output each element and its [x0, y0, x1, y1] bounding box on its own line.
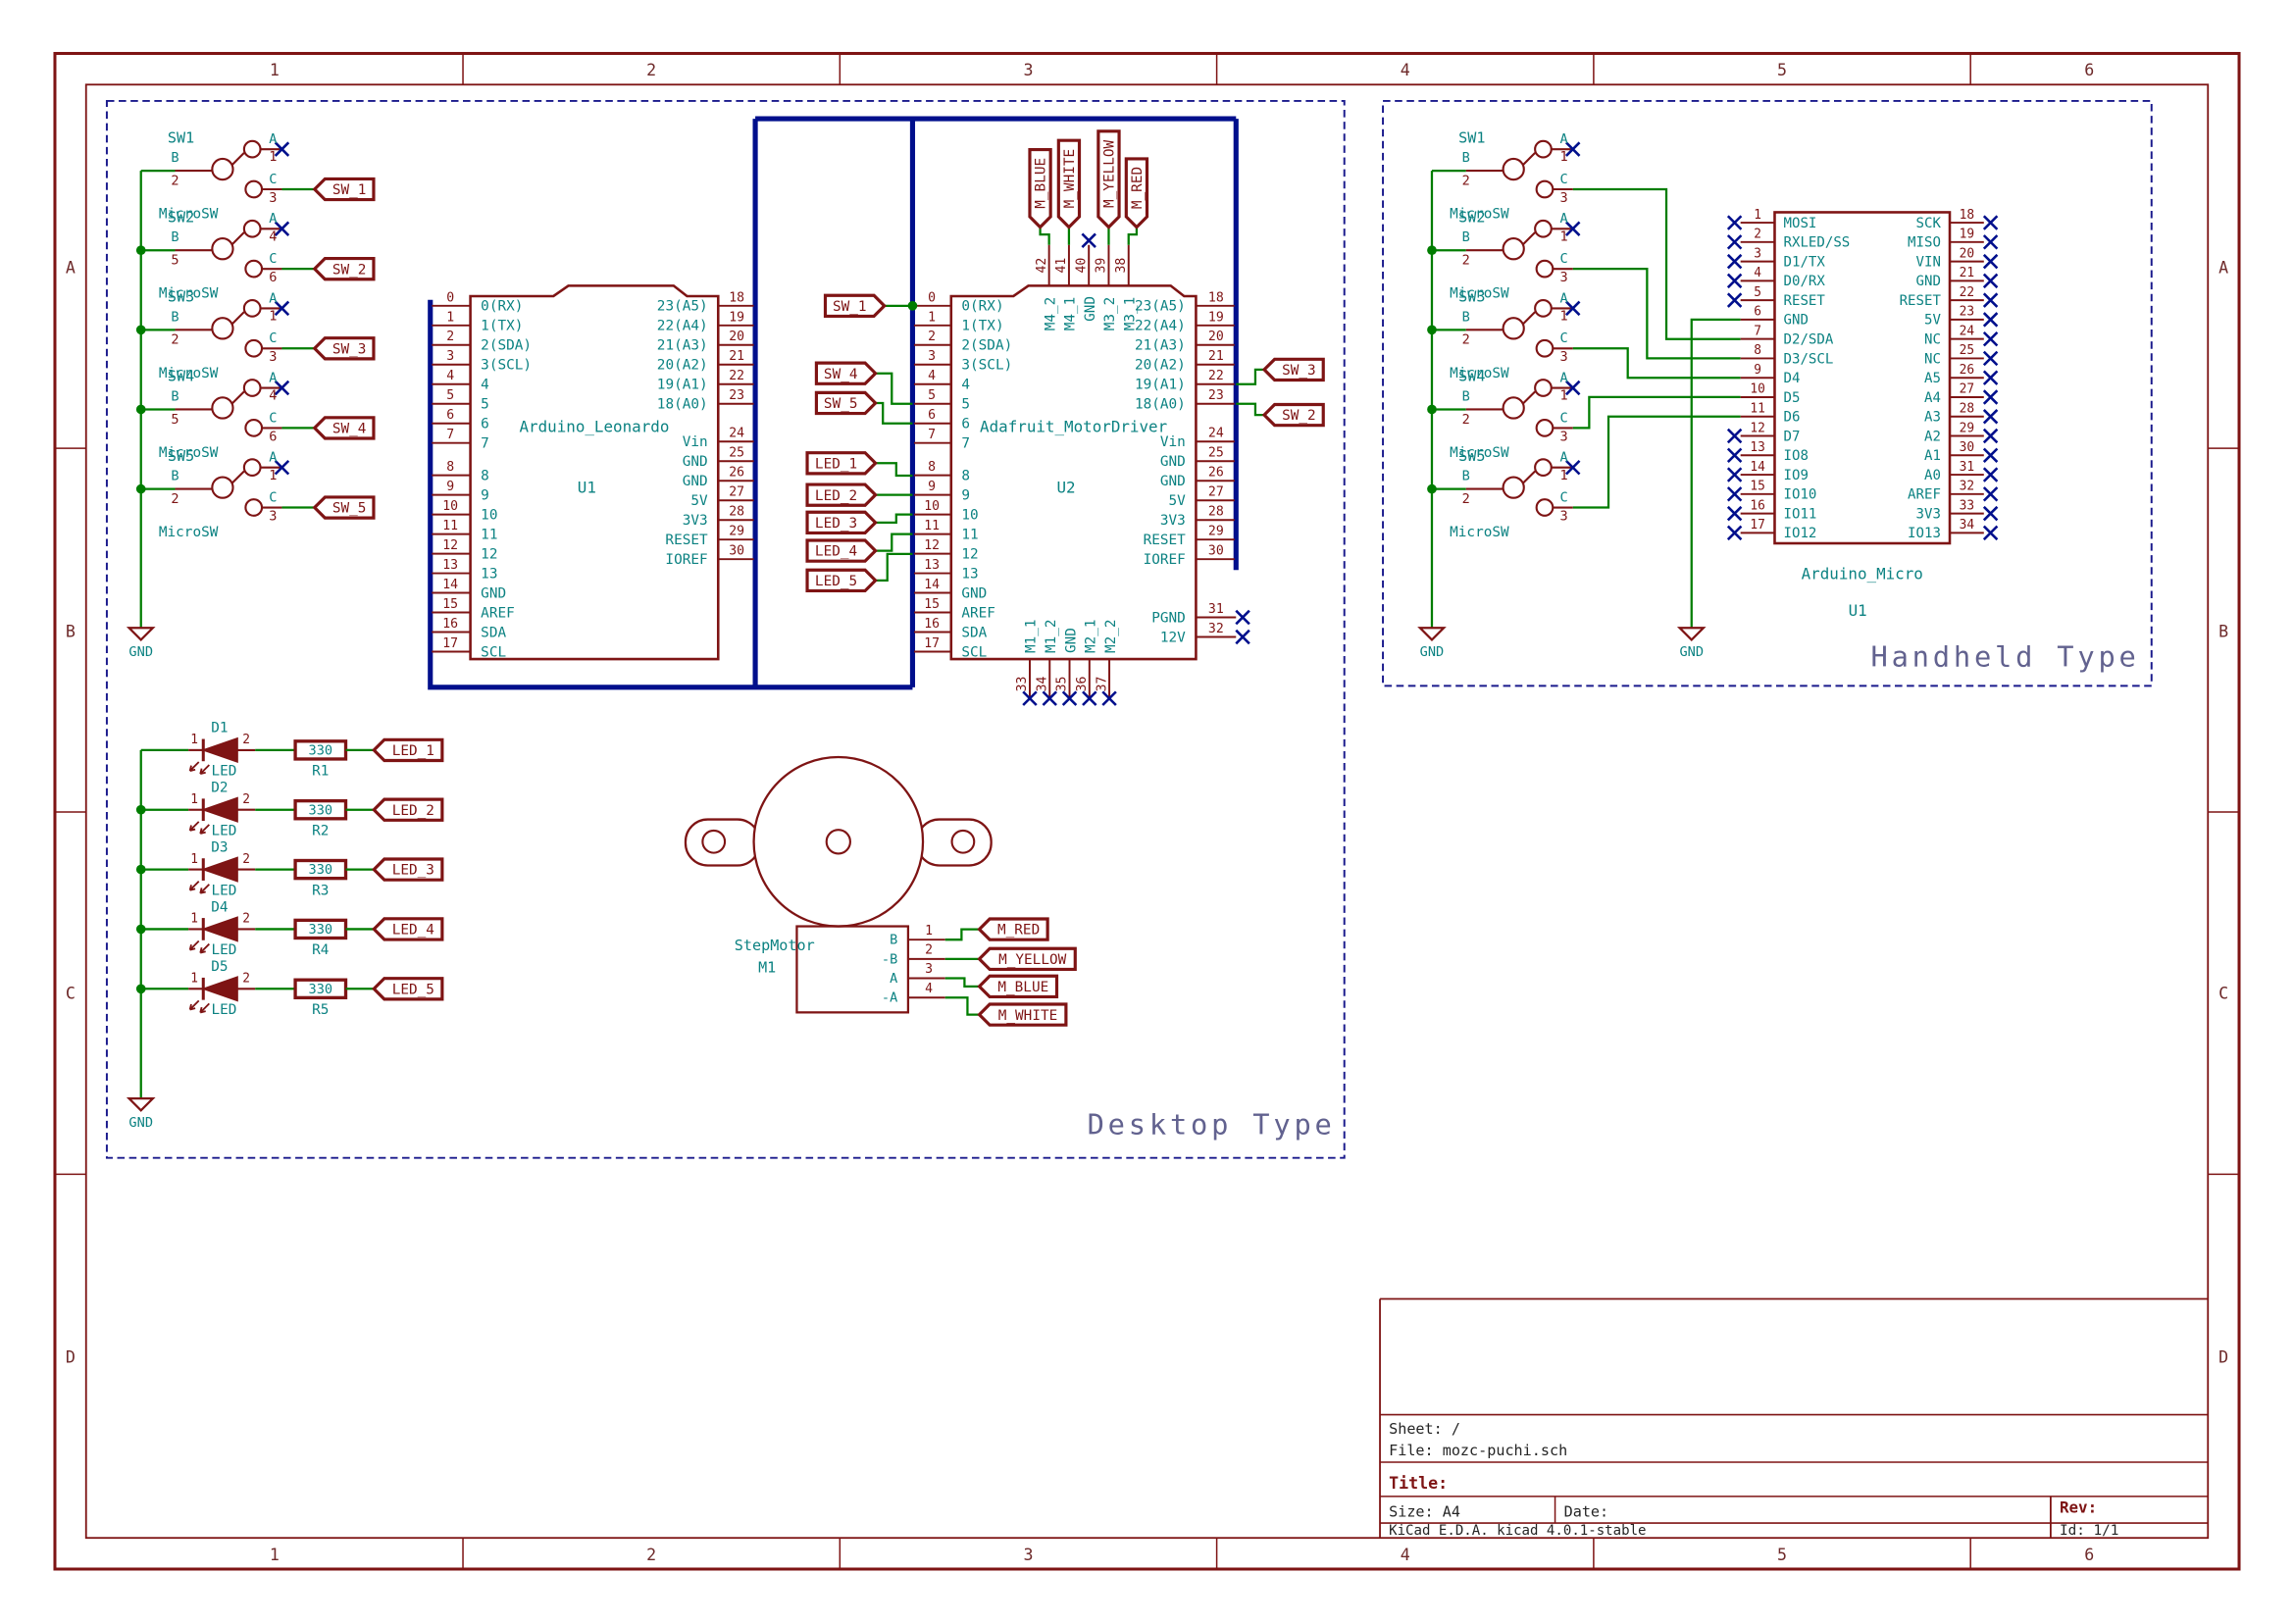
component-sw2-handheld[interactable]: SW2B2A1C3MicroSW: [1432, 208, 1580, 301]
pin-number: 32: [1208, 622, 1224, 636]
pin-number: 0: [928, 290, 936, 305]
pin-number: 4: [928, 369, 936, 383]
pin-number: 1: [269, 309, 277, 325]
pin-name: Vin: [1160, 434, 1186, 450]
net-label-text: SW_4: [824, 367, 858, 382]
switch-contact: [1523, 153, 1535, 165]
net-label-sw_3[interactable]: SW_3: [315, 338, 374, 359]
schematic-page: 112233445566AABBCCDDSheet: /File: mozc-p…: [0, 0, 2294, 1624]
pin-number: 2: [171, 332, 178, 348]
net-label-text: LED_4: [815, 544, 857, 560]
component-r4[interactable]: 330R4: [295, 920, 374, 958]
pin-number: 20: [1208, 330, 1224, 344]
pin-number: 12: [442, 538, 458, 553]
titleblock-generator: KiCad E.D.A. kicad 4.0.1-stable: [1389, 1523, 1646, 1539]
wire: [876, 403, 913, 424]
frame-column-label: 2: [646, 61, 656, 79]
pin-name: MOSI: [1784, 216, 1817, 231]
pin-name: C: [1560, 251, 1568, 267]
frame-column-label: 5: [1777, 1546, 1787, 1564]
net-label-m_red[interactable]: M_RED: [980, 919, 1048, 939]
net-label-m_red[interactable]: M_RED: [1126, 159, 1147, 228]
net-label-sw_4[interactable]: SW_4: [816, 363, 875, 383]
switch-throw-a: [244, 459, 261, 476]
net-label-sw_5[interactable]: SW_5: [816, 392, 875, 413]
net-label-led_2[interactable]: LED_2: [807, 484, 876, 505]
component-ref: SW1: [1458, 128, 1485, 146]
pin-number: 25: [729, 446, 744, 461]
pin-name: IO11: [1784, 506, 1817, 522]
switch-throw-c: [1537, 499, 1554, 516]
net-label-text: SW_2: [332, 262, 367, 278]
net-label-text: M_BLUE: [1034, 158, 1049, 209]
pin-number: 6: [446, 408, 454, 423]
pin-number: 10: [442, 499, 458, 514]
pin-number: 1: [1560, 309, 1568, 325]
pin-name: VIN: [1916, 254, 1941, 270]
no-connect-x: [1728, 255, 1742, 269]
resistor-value: 330: [309, 802, 333, 818]
pin-number: 2: [242, 792, 250, 807]
component-r1[interactable]: 330R1: [295, 741, 374, 780]
pin-number: 21: [1208, 349, 1224, 364]
net-label-m_blue[interactable]: M_BLUE: [1030, 150, 1050, 228]
net-label-sw_1[interactable]: SW_1: [315, 178, 374, 199]
component-d2[interactable]: 12D2LED: [141, 781, 295, 839]
component-value: LED: [211, 883, 236, 898]
pin-name: 4: [481, 378, 489, 393]
pin-name: 21(A3): [1135, 338, 1186, 354]
pin-name: 5: [481, 397, 489, 413]
wire: [1041, 228, 1049, 245]
pin-number: 25: [1960, 343, 1974, 358]
led-emission-arrow: [200, 825, 209, 834]
motor-ear: [917, 820, 992, 866]
component-ref: D5: [211, 959, 228, 975]
pin-number: 13: [442, 558, 458, 573]
pin-number: 1: [190, 912, 198, 927]
no-connect-x: [1984, 527, 1998, 540]
switch-throw-c: [245, 420, 262, 436]
component-ref: D3: [211, 839, 228, 855]
component-ref: R3: [312, 883, 329, 898]
pin-name: -A: [882, 990, 897, 1006]
switch-common: [212, 397, 232, 418]
component-ref: R1: [312, 764, 329, 780]
pin-number: 38: [1114, 258, 1129, 274]
sheet-handheld[interactable]: [1383, 101, 2152, 685]
net-label-sw_2[interactable]: SW_2: [315, 259, 374, 279]
pin-number: 41: [1054, 258, 1069, 274]
resistor-value: 330: [309, 982, 333, 997]
wire: [945, 930, 980, 940]
pin-name: M4_1: [1063, 297, 1079, 331]
no-connect-x: [1728, 216, 1742, 229]
net-label-text: M_WHITE: [998, 1008, 1058, 1024]
net-label-m_yellow[interactable]: M_YELLOW: [1098, 131, 1119, 228]
pin-name: D1/TX: [1784, 254, 1826, 270]
wire: [1573, 348, 1741, 378]
pin-number: 2: [242, 971, 250, 986]
net-label-text: SW_5: [824, 396, 858, 412]
pin-number: 14: [442, 578, 458, 592]
net-label-led_4[interactable]: LED_4: [807, 540, 876, 561]
pin-number: 1: [1560, 149, 1568, 165]
pin-name: D7: [1784, 429, 1801, 444]
pin-name: MISO: [1908, 235, 1941, 251]
pin-name: M3_2: [1102, 297, 1118, 331]
pin-name: IOREF: [665, 552, 707, 568]
pin-name: D4: [1784, 371, 1801, 386]
no-connect-x: [1728, 487, 1742, 501]
pin-name: IO13: [1908, 526, 1941, 541]
pin-number: 40: [1074, 258, 1089, 274]
component-sw5-desktop[interactable]: SW5B2A1C3MicroSWSW_5: [141, 447, 374, 540]
switch-throw-a: [1535, 459, 1552, 476]
pin-number: 29: [1208, 525, 1224, 539]
led-emission-arrow: [200, 944, 209, 953]
component-d1[interactable]: 12D1LED: [141, 721, 295, 780]
motor-ear: [686, 820, 760, 866]
wire: [876, 463, 913, 476]
pin-number: 5: [171, 253, 178, 269]
switch-common: [1504, 397, 1524, 418]
desktop-switch-bank: GND: [128, 171, 153, 660]
wire: [945, 979, 980, 987]
net-label-led_3[interactable]: LED_3: [807, 512, 876, 533]
sheet-name-desktop: Desktop Type: [1088, 1107, 1336, 1141]
pin-number: 19: [1960, 228, 1974, 242]
pin-name: 2(SDA): [481, 338, 532, 354]
pin-number: 3: [1560, 270, 1568, 285]
component-ref: U2: [1056, 479, 1075, 497]
pin-number: 27: [729, 485, 744, 500]
pin-number: 6: [1754, 305, 1761, 320]
pin-name: 0(RX): [961, 299, 1003, 315]
component-ref: SW3: [168, 288, 194, 306]
component-ref: SW3: [1458, 288, 1485, 306]
pin-number: 19: [1208, 310, 1224, 325]
net-label-m_yellow[interactable]: M_YELLOW: [980, 948, 1076, 969]
frame-column-label: 3: [1023, 61, 1033, 79]
frame-column-label: 6: [2084, 61, 2094, 79]
net-label-led_5[interactable]: LED_5: [374, 979, 442, 999]
net-label-sw_1[interactable]: SW_1: [825, 295, 884, 316]
component-ref: R4: [312, 942, 329, 958]
pin-number: 7: [1754, 324, 1761, 338]
pin-number: 23: [1960, 305, 1974, 320]
no-connect-x: [1984, 216, 1998, 229]
pin-number: 2: [1462, 173, 1470, 188]
net-label-text: LED_5: [392, 982, 434, 997]
pin-number: 18: [729, 290, 744, 305]
component-ref: D2: [211, 781, 228, 796]
switch-contact: [1523, 391, 1535, 403]
pin-name: IO10: [1784, 487, 1817, 503]
pin-number: 5: [446, 388, 454, 403]
pin-number: 3: [1560, 190, 1568, 206]
net-label-sw_3[interactable]: SW_3: [1264, 359, 1323, 380]
pin-name: 0(RX): [481, 299, 523, 315]
pin-name: 7: [481, 436, 489, 452]
pin-name: SDA: [481, 625, 506, 640]
pin-number: 29: [1960, 421, 1974, 435]
component-sw1-handheld[interactable]: SW1B2A1C3MicroSW: [1432, 128, 1580, 222]
pin-number: 3: [1754, 246, 1761, 261]
pin-name: GND: [1160, 474, 1186, 489]
net-label-text: LED_2: [815, 488, 857, 504]
pin-name: M3_1: [1122, 297, 1138, 331]
net-label-text: SW_3: [332, 341, 367, 357]
net-label-m_white[interactable]: M_WHITE: [980, 1004, 1066, 1025]
frame-column-label: 5: [1777, 61, 1787, 79]
pin-name: 5: [961, 397, 970, 413]
pin-name: AREF: [1908, 487, 1941, 503]
no-connect-x: [1984, 507, 1998, 521]
no-connect-x: [1984, 390, 1998, 404]
component-value: LED: [211, 942, 236, 958]
pin-name: IOREF: [1144, 552, 1186, 568]
frame-column-label: 2: [646, 1546, 656, 1564]
component-r2[interactable]: 330R2: [295, 801, 374, 839]
no-connect-x: [1728, 468, 1742, 482]
pin-name: 11: [961, 527, 978, 542]
resistor-value: 330: [309, 862, 333, 878]
pin-number: 4: [269, 228, 277, 244]
pin-number: 5: [171, 412, 178, 428]
pin-name: A: [269, 450, 277, 466]
net-label-led_5[interactable]: LED_5: [807, 570, 876, 590]
net-label-text: M_WHITE: [1062, 149, 1078, 209]
pin-number: 6: [269, 270, 277, 285]
pin-name: A: [269, 131, 277, 147]
pin-name: A: [269, 370, 277, 385]
wire: [876, 374, 913, 404]
pin-name: 3V3: [1916, 506, 1941, 522]
pin-number: 8: [928, 460, 936, 475]
no-connect-x: [1984, 332, 1998, 346]
pin-name: GND: [1083, 296, 1098, 322]
net-label-text: M_YELLOW: [1102, 139, 1118, 208]
switch-throw-a: [244, 300, 261, 317]
gnd-symbol: GND: [128, 628, 153, 660]
pin-name: 23(A5): [1135, 299, 1186, 315]
component-value: LED: [211, 764, 236, 780]
component-d5[interactable]: 12D5LED: [141, 959, 295, 1018]
pin-name: NC: [1924, 332, 1941, 348]
pin-name: A1: [1924, 448, 1941, 464]
pin-number: 17: [924, 636, 940, 651]
pin-name: D6: [1784, 410, 1801, 426]
component-value: LED: [211, 1002, 236, 1018]
pin-name: 21(A3): [657, 338, 708, 354]
gnd-symbol: GND: [1420, 628, 1445, 660]
component-ref: U1: [578, 479, 596, 497]
net-label-led_3[interactable]: LED_3: [374, 859, 442, 880]
pin-number: 1: [269, 468, 277, 483]
net-label-text: SW_1: [332, 182, 367, 198]
pin-name: B: [1462, 150, 1470, 166]
pin-number: 14: [1750, 460, 1765, 475]
no-connect-x: [1984, 430, 1998, 443]
pin-number: 17: [442, 636, 458, 651]
pin-number: 16: [1750, 498, 1764, 513]
component-name: Arduino_Micro: [1802, 564, 1923, 583]
component-value: MicroSW: [159, 525, 219, 540]
component-ref: D1: [211, 721, 228, 736]
pin-name: 9: [961, 487, 970, 503]
component-r5[interactable]: 330R5: [295, 980, 374, 1018]
pin-number: 1: [190, 971, 198, 986]
pin-number: 12: [1750, 421, 1764, 435]
net-label-text: LED_4: [392, 923, 434, 939]
component-value: LED: [211, 823, 236, 838]
no-connect-x: [1984, 487, 1998, 501]
pin-name: 19(A1): [1135, 378, 1186, 393]
component-ref: SW4: [1458, 368, 1485, 385]
component-ref: R5: [312, 1002, 329, 1018]
pin-number: 1: [446, 310, 454, 325]
net-label-text: LED_2: [392, 803, 434, 819]
net-label-text: SW_1: [833, 299, 867, 315]
switch-contact: [232, 232, 244, 244]
pin-name: GND: [481, 585, 506, 601]
pin-number: 22: [1208, 369, 1224, 383]
pin-number: 39: [1095, 258, 1109, 274]
pin-number: 10: [924, 499, 940, 514]
pin-name: 4: [961, 378, 970, 393]
led-emission-arrow: [190, 822, 199, 831]
pin-number: 24: [1960, 324, 1975, 338]
net-label-text: M_YELLOW: [998, 952, 1066, 968]
pin-name: GND: [1160, 454, 1186, 470]
net-label-led_1[interactable]: LED_1: [807, 453, 876, 474]
pin-name: 1(TX): [961, 319, 1003, 334]
pin-name: 3(SCL): [481, 358, 532, 374]
gnd-triangle: [129, 1098, 153, 1110]
schematic-canvas[interactable]: 112233445566AABBCCDDSheet: /File: mozc-p…: [0, 0, 2294, 1624]
pin-number: 20: [729, 330, 744, 344]
pin-name: A2: [1924, 429, 1941, 444]
switch-throw-a: [1535, 300, 1552, 317]
desktop-net-wires: SW_1SW_4SW_5LED_1LED_2LED_3LED_4LED_5SW_…: [807, 295, 1323, 590]
pin-number: 1: [1754, 208, 1761, 223]
pin-number: 25: [1208, 446, 1224, 461]
net-label-text: LED_3: [815, 516, 857, 532]
pin-name: 3V3: [683, 513, 708, 529]
pin-name: A: [1560, 370, 1568, 385]
pin-name: A: [1560, 131, 1568, 147]
net-label-led_4[interactable]: LED_4: [374, 919, 442, 939]
pin-name: PGND: [1151, 610, 1186, 626]
pin-number: 11: [924, 519, 940, 533]
pin-number: 28: [1960, 402, 1974, 417]
led-triangle: [203, 738, 237, 762]
component-r3[interactable]: 330R3: [295, 860, 374, 898]
component-d3[interactable]: 12D3LED: [141, 839, 295, 898]
led-emission-arrow: [200, 1003, 209, 1012]
net-label-led_1[interactable]: LED_1: [374, 739, 442, 760]
no-connect-x: [1984, 255, 1998, 269]
pin-number: 5: [928, 388, 936, 403]
net-label-sw_2[interactable]: SW_2: [1264, 404, 1323, 425]
switch-throw-c: [245, 340, 262, 357]
component-sw4-handheld[interactable]: SW4B2A1C3MicroSW: [1432, 368, 1580, 461]
component-sw5-handheld[interactable]: SW5B2A1C3MicroSW: [1432, 447, 1580, 540]
net-label-m_white[interactable]: M_WHITE: [1058, 140, 1079, 227]
switch-throw-c: [1537, 181, 1554, 198]
component-ref: SW4: [168, 368, 194, 385]
pin-number: 24: [1208, 427, 1224, 441]
component-u1-arduino_leonardo[interactable]: 00(RX)11(TX)22(SDA)33(SCL)44556677889910…: [432, 285, 753, 660]
led-triangle: [203, 977, 237, 1000]
pin-number: 1: [190, 852, 198, 867]
net-label-m_blue[interactable]: M_BLUE: [980, 976, 1057, 996]
pin-name: SCL: [481, 644, 506, 660]
switch-throw-a: [1535, 141, 1552, 158]
pin-number: 2: [242, 733, 250, 747]
component-sw3-handheld[interactable]: SW3B2A1C3MicroSW: [1432, 288, 1580, 381]
pin-name: 9: [481, 487, 489, 503]
motor-body: [754, 757, 923, 927]
pin-number: 30: [1208, 544, 1224, 559]
resistor-value: 330: [309, 742, 333, 758]
pin-number: 1: [925, 924, 933, 939]
net-label-sw_4[interactable]: SW_4: [315, 418, 374, 438]
gnd-label: GND: [1679, 644, 1704, 660]
pin-name: 10: [961, 507, 978, 523]
component-ref: SW2: [1458, 208, 1485, 226]
pin-name: 8: [481, 469, 489, 484]
wire: [1573, 269, 1741, 358]
frame-column-label: 1: [270, 61, 280, 79]
switch-throw-a: [1535, 380, 1552, 396]
sheet-desktop[interactable]: [107, 101, 1345, 1158]
pin-name: 12V: [1160, 630, 1186, 645]
pin-name: C: [269, 172, 277, 187]
net-label-led_2[interactable]: LED_2: [374, 799, 442, 820]
pin-number: 11: [442, 519, 458, 533]
pin-name: A: [269, 290, 277, 306]
switch-throw-c: [1537, 340, 1554, 357]
pin-name: M2_1: [1084, 619, 1099, 653]
component-u2-adafruit_motordriver[interactable]: 00(RX)11(TX)22(SDA)33(SCL)44556677889910…: [914, 131, 1249, 705]
no-connect-x: [1728, 527, 1742, 540]
net-label-sw_5[interactable]: SW_5: [315, 497, 374, 518]
pin-number: 2: [171, 173, 178, 188]
gnd-symbol: GND: [1679, 628, 1704, 660]
frame-column-label: 6: [2084, 1546, 2094, 1564]
pin-number: 9: [928, 480, 936, 494]
pin-number: 22: [729, 369, 744, 383]
pin-number: 1: [1560, 388, 1568, 404]
pin-number: 36: [1075, 676, 1090, 691]
pin-name: 3V3: [1160, 513, 1186, 529]
switch-contact: [232, 471, 244, 482]
gnd-symbol: GND: [128, 1098, 153, 1131]
net-label-text: LED_3: [392, 863, 434, 879]
led-emission-arrow: [190, 941, 199, 950]
component-m1-stepmotor[interactable]: StepMotorM1B1M_RED-B2M_YELLOWA3M_BLUE-A4…: [686, 757, 1075, 1025]
wire: [1236, 404, 1264, 415]
pin-name: 12: [961, 546, 978, 562]
pin-number: 35: [1055, 677, 1070, 692]
switch-throw-c: [245, 499, 262, 516]
component-u1-arduino_micro[interactable]: 1MOSI2RXLED/SS3D1/TX4D0/RX5RESET6GND7D2/…: [1728, 208, 1998, 620]
pin-number: 3: [1560, 508, 1568, 524]
pin-number: 18: [1960, 208, 1974, 223]
component-d4[interactable]: 12D4LED: [141, 899, 295, 958]
